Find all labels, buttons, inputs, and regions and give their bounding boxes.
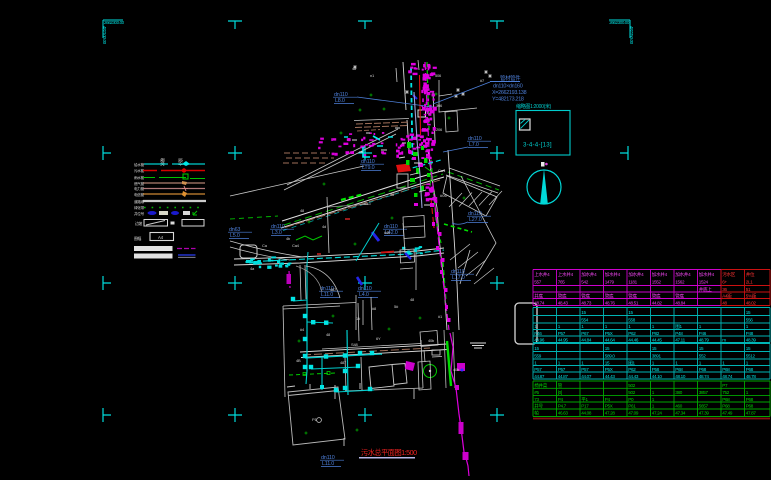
svg-text:A4: A4 [158, 235, 164, 240]
svg-text:47.28: 47.28 [605, 410, 616, 415]
svg-text:P7: P7 [722, 383, 728, 388]
svg-text:管底: 管底 [558, 292, 567, 299]
svg-text:加水井4: 加水井4 [628, 271, 644, 278]
svg-text:51: 51 [746, 287, 751, 292]
svg-text:井底: 井底 [534, 292, 543, 299]
svg-text:48.43: 48.43 [558, 301, 569, 306]
svg-text:P48: P48 [675, 331, 683, 336]
svg-text:44.07: 44.07 [581, 374, 592, 379]
svg-text:P0: P0 [628, 397, 634, 402]
svg-text:542: 542 [581, 280, 589, 285]
svg-text:管底: 管底 [605, 292, 614, 299]
svg-text:管底: 管底 [675, 292, 684, 299]
svg-text:44.87: 44.87 [558, 374, 569, 379]
svg-text:2662300.00: 2662300.00 [609, 20, 630, 25]
svg-text:206: 206 [436, 127, 443, 132]
svg-text:15: 15 [534, 346, 539, 351]
svg-text:48.02: 48.02 [746, 301, 757, 306]
svg-text:管材管件: 管材管件 [500, 74, 521, 82]
svg-text:1524: 1524 [699, 280, 709, 285]
svg-text:557: 557 [534, 280, 542, 285]
svg-text:图幅: 图幅 [134, 236, 141, 241]
svg-text:管底: 管底 [581, 292, 590, 299]
svg-text:589.0: 589.0 [605, 354, 616, 359]
svg-text:P4: P4 [605, 397, 611, 402]
svg-text:P48: P48 [746, 331, 754, 336]
svg-text:井号: 井号 [534, 403, 543, 410]
svg-text:m: m [722, 338, 726, 343]
svg-text:4B: 4B [296, 358, 301, 363]
svg-text:上水井4: 上水井4 [534, 271, 550, 278]
svg-text:44.45: 44.45 [652, 338, 663, 343]
svg-text:44.46: 44.46 [628, 338, 639, 343]
svg-text:P67: P67 [581, 331, 589, 336]
svg-text:48.51: 48.51 [628, 301, 639, 306]
svg-text:上水井4: 上水井4 [558, 271, 574, 278]
svg-text:47.49: 47.49 [722, 410, 733, 415]
svg-text:给水管: 给水管 [134, 162, 145, 167]
svg-text:502: 502 [628, 390, 636, 395]
svg-text:487: 487 [340, 360, 347, 365]
svg-text:#48: #48 [384, 230, 391, 235]
svg-text:48.39: 48.39 [746, 338, 757, 343]
svg-text:2L1: 2L1 [746, 280, 754, 285]
svg-text:缩略图1:2000(米): 缩略图1:2000(米) [516, 103, 552, 110]
svg-text:X=2662193.138: X=2662193.138 [492, 90, 527, 96]
svg-text:48.78: 48.78 [746, 374, 757, 379]
svg-text:48.74: 48.74 [534, 301, 545, 306]
svg-text:15: 15 [628, 310, 633, 315]
svg-text:552: 552 [699, 354, 707, 359]
svg-text:46.63: 46.63 [558, 410, 569, 415]
svg-text:47.24: 47.24 [652, 410, 663, 415]
svg-text:3857: 3857 [699, 390, 709, 395]
svg-text:44.10: 44.10 [652, 374, 663, 379]
svg-text:P68: P68 [675, 367, 683, 372]
svg-text:306: 306 [436, 103, 443, 108]
svg-text:502: 502 [628, 383, 636, 388]
svg-text:Y=482173.218: Y=482173.218 [492, 97, 524, 103]
svg-text:36: 36 [722, 287, 727, 292]
svg-text:加水井4: 加水井4 [675, 271, 691, 278]
svg-text:P17: P17 [581, 404, 589, 409]
svg-text:48.74: 48.74 [722, 374, 733, 379]
svg-text:P58: P58 [652, 367, 660, 372]
svg-text:44.87: 44.87 [534, 374, 545, 379]
svg-text:44.64: 44.64 [605, 338, 616, 343]
svg-text:44.43: 44.43 [605, 374, 616, 379]
svg-text:加水井4: 加水井4 [652, 271, 668, 278]
svg-text:47.87: 47.87 [746, 410, 757, 415]
svg-text:15: 15 [605, 346, 610, 351]
svg-text:P68: P68 [746, 404, 754, 409]
svg-text:48.84: 48.84 [675, 301, 686, 306]
svg-text:2662300.00: 2662300.00 [104, 20, 125, 25]
svg-text:帕: 帕 [534, 409, 539, 416]
svg-text:污水管: 污水管 [134, 168, 145, 173]
svg-text:460: 460 [675, 404, 683, 409]
svg-text:44.96: 44.96 [534, 338, 545, 343]
svg-text:椅井菜: 椅井菜 [534, 382, 548, 389]
svg-text:47.11: 47.11 [675, 338, 685, 343]
svg-text:电信管: 电信管 [134, 192, 145, 197]
svg-text:1479: 1479 [605, 280, 615, 285]
svg-text:48.10: 48.10 [675, 374, 686, 379]
svg-text:道路缘: 道路缘 [134, 199, 145, 204]
svg-text:污水总平面图1:500: 污水总平面图1:500 [361, 448, 417, 457]
svg-text:加水井4: 加水井4 [699, 271, 715, 278]
svg-text:P62: P62 [628, 367, 636, 372]
svg-text:P57: P57 [534, 367, 542, 372]
svg-text:15: 15 [746, 310, 751, 315]
svg-text:P4: P4 [558, 397, 564, 402]
svg-text:558: 558 [628, 317, 636, 322]
svg-text:559: 559 [534, 354, 542, 359]
svg-text:1562: 1562 [675, 280, 685, 285]
svg-text:井位号: 井位号 [134, 211, 145, 216]
svg-text:P68: P68 [699, 367, 707, 372]
svg-text:44.84: 44.84 [581, 338, 592, 343]
svg-text:P4.7: P4.7 [558, 404, 567, 409]
svg-text:556: 556 [746, 317, 754, 322]
svg-text:506: 506 [435, 73, 442, 78]
svg-text:P68: P68 [722, 367, 730, 372]
svg-text:加水井4: 加水井4 [581, 271, 597, 278]
svg-text:15: 15 [605, 360, 610, 365]
svg-text:8d: 8d [364, 201, 368, 206]
svg-text:15: 15 [652, 346, 657, 351]
svg-text:73: 73 [534, 397, 539, 402]
svg-text:P46: P46 [699, 331, 707, 336]
svg-text:48.79: 48.79 [699, 338, 710, 343]
svg-text:现状: 现状 [159, 158, 166, 167]
svg-text:1552: 1552 [652, 280, 662, 285]
svg-text:P5X: P5X [605, 367, 613, 372]
svg-text:380: 380 [675, 390, 683, 395]
svg-text:5%距: 5%距 [746, 293, 757, 298]
svg-text:P57: P57 [558, 331, 566, 336]
svg-text:15: 15 [581, 310, 586, 315]
svg-text:雨水管: 雨水管 [134, 175, 145, 180]
svg-text:边坡: 边坡 [135, 221, 142, 226]
svg-text:47.39: 47.39 [699, 410, 710, 415]
svg-text:48.73: 48.73 [581, 301, 592, 306]
svg-text:3891: 3891 [652, 354, 662, 359]
svg-text:6+: 6+ [722, 280, 727, 285]
svg-text:P82: P82 [652, 331, 660, 336]
svg-text:燃气管: 燃气管 [134, 181, 145, 186]
svg-text:48.76: 48.76 [605, 301, 616, 306]
svg-text:A4距: A4距 [722, 293, 732, 298]
svg-text:44.95: 44.95 [558, 338, 569, 343]
svg-text:44.08: 44.08 [581, 410, 592, 415]
svg-text:48.74: 48.74 [699, 374, 710, 379]
svg-text:1181: 1181 [628, 280, 637, 285]
svg-text:[0]: [0] [558, 390, 562, 395]
svg-text:3-4-4-[13]: 3-4-4-[13] [523, 142, 552, 149]
svg-text:40b: 40b [453, 367, 460, 372]
svg-text:S48: S48 [351, 342, 358, 347]
svg-text:44.43: 44.43 [628, 374, 639, 379]
svg-text:752: 752 [722, 390, 730, 395]
svg-text:P46: P46 [534, 331, 542, 336]
svg-text:#06: #06 [440, 193, 447, 198]
svg-text:40b: 40b [428, 338, 435, 343]
svg-text:P5X: P5X [605, 331, 613, 336]
svg-text:15: 15 [746, 346, 751, 351]
svg-text:污水区: 污水区 [722, 271, 736, 278]
svg-text:#5: #5 [534, 390, 539, 395]
svg-text:P68: P68 [722, 404, 730, 409]
svg-text:管底: 管底 [628, 292, 637, 299]
svg-text:管底: 管底 [652, 292, 661, 299]
svg-text:44.82: 44.82 [652, 301, 663, 306]
svg-text:47.34: 47.34 [675, 410, 686, 415]
svg-text:绿化带: 绿化带 [134, 205, 145, 210]
svg-text:设计: 设计 [177, 158, 184, 166]
svg-text:Ca1: Ca1 [438, 168, 446, 173]
svg-text:P68: P68 [746, 397, 754, 402]
svg-text:P57: P57 [558, 367, 566, 372]
svg-text:加水井4: 加水井4 [605, 271, 621, 278]
svg-text:47.09: 47.09 [628, 410, 639, 415]
svg-text:554: 554 [581, 317, 589, 322]
svg-text:48: 48 [722, 301, 727, 306]
svg-text:5657: 5657 [699, 404, 709, 409]
svg-text:P5X: P5X [605, 404, 613, 409]
svg-text:5512: 5512 [746, 354, 756, 359]
svg-text:井位: 井位 [746, 271, 755, 278]
svg-text:Ca4: Ca4 [292, 243, 300, 248]
svg-text:井底上: 井底上 [699, 286, 713, 293]
svg-text:P61: P61 [628, 404, 636, 409]
svg-text:电力管: 电力管 [134, 186, 145, 191]
svg-text:15: 15 [699, 346, 704, 351]
svg-text:P62: P62 [628, 331, 636, 336]
svg-text:765: 765 [558, 280, 566, 285]
svg-text:4d: 4d [322, 224, 326, 229]
svg-text:6Y: 6Y [376, 336, 381, 341]
svg-text:P68: P68 [746, 367, 754, 372]
svg-text:dn110×dn160: dn110×dn160 [493, 84, 523, 90]
svg-text:P68: P68 [722, 397, 730, 402]
svg-text:P57: P57 [581, 367, 589, 372]
svg-text:管: 管 [558, 382, 563, 389]
